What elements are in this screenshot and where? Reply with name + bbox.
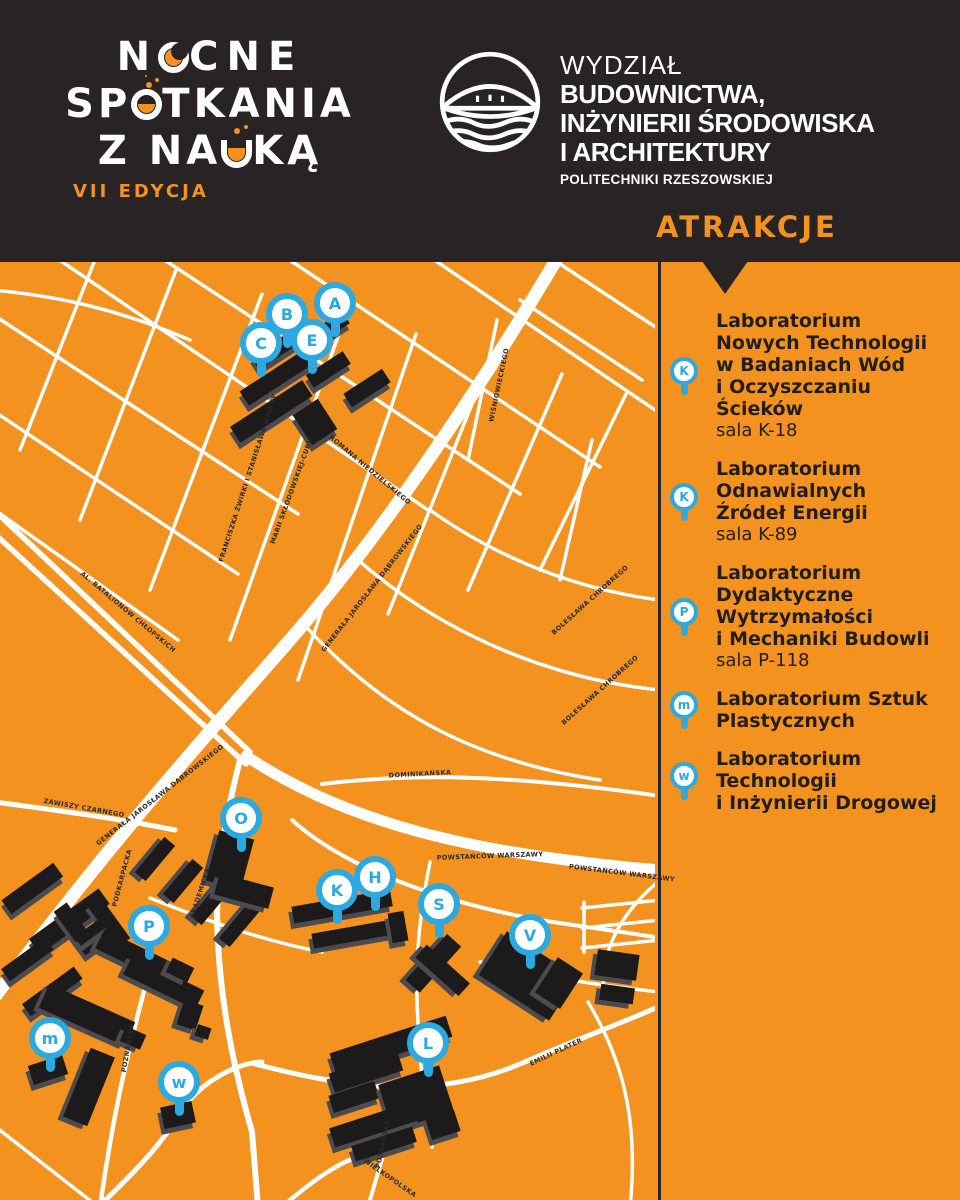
poster: A B C E O P K H S V m w <box>0 0 960 1200</box>
pointer-down-icon <box>702 261 748 294</box>
map-pin[interactable]: C <box>240 322 282 377</box>
attraction-title: Laboratorium Sztuk Plastycznych <box>716 688 956 732</box>
attraction-room: sala K-18 <box>716 420 956 442</box>
map-pin-letter: K <box>316 869 358 911</box>
attraction-pin-icon: w <box>670 762 698 800</box>
map-pin-tail <box>145 946 154 960</box>
flask-icon <box>131 89 162 120</box>
map-pin-tail <box>435 924 444 938</box>
attraction-title: Laboratorium Technologii i Inżynierii Dr… <box>716 748 956 814</box>
attraction-pin-icon: K <box>670 357 698 395</box>
map-pin[interactable]: H <box>354 856 396 911</box>
attraction-title: Laboratorium Nowych Technologii w Badani… <box>716 310 956 420</box>
event-logo: NCNE SPTKANIA Z NAKĄ VII EDYCJA <box>45 34 375 202</box>
attraction-item: P Laboratorium Dydaktyczne Wytrzymałości… <box>664 562 956 672</box>
map-pin[interactable]: P <box>128 905 170 960</box>
map-pin-tail <box>257 363 266 377</box>
map-pin[interactable]: O <box>220 797 262 852</box>
map-pin[interactable]: V <box>509 914 551 969</box>
beaker-icon <box>221 140 252 168</box>
map-pin-tail <box>526 955 535 969</box>
attraction-room: sala P-118 <box>716 650 956 672</box>
attractions-list: K Laboratorium Nowych Technologii w Bada… <box>664 262 956 830</box>
map-pin[interactable]: w <box>158 1061 200 1116</box>
logo-line-nocne: NCNE <box>45 34 375 81</box>
faculty-line-4: I ARCHITEKTURY <box>560 138 875 167</box>
faculty-line-5: POLITECHNIKI RZESZOWSKIEJ <box>560 172 875 187</box>
map-pin[interactable]: m <box>29 1017 71 1072</box>
map-pin-tail <box>175 1102 184 1116</box>
attraction-title: Laboratorium Dydaktyczne Wytrzymałości i… <box>716 562 956 650</box>
map-pin-tail <box>424 1063 433 1077</box>
faculty-name: WYDZIAŁ BUDOWNICTWA, INŻYNIERII ŚRODOWIS… <box>560 50 875 187</box>
map-pin-letter: V <box>509 914 551 956</box>
header: NCNE SPTKANIA Z NAKĄ VII EDYCJA WYDZIAŁ … <box>0 0 960 262</box>
map-pin-letter: S <box>418 883 460 925</box>
attraction-item: K Laboratorium Nowych Technologii w Bada… <box>664 310 956 442</box>
map-pin-letter: C <box>240 322 282 364</box>
map-pin-tail <box>237 838 246 852</box>
attraction-pin-icon: P <box>670 598 698 636</box>
map-pin[interactable]: L <box>407 1022 449 1077</box>
faculty-line-2: BUDOWNICTWA, <box>560 80 875 109</box>
faculty-line-1: WYDZIAŁ <box>560 50 875 80</box>
faculty-line-3: INŻYNIERII ŚRODOWISKA <box>560 109 875 138</box>
map-pin-tail <box>308 360 317 374</box>
attraction-item: w Laboratorium Technologii i Inżynierii … <box>664 748 956 814</box>
map-pin[interactable]: E <box>291 319 333 374</box>
map-pin-tail <box>371 897 380 911</box>
divider-line <box>658 262 661 1200</box>
logo-line-z-nauka: Z NAKĄ <box>45 128 375 175</box>
map-pin-letter: A <box>314 282 356 324</box>
map-roads-buildings <box>0 262 655 1200</box>
map-pin[interactable]: S <box>418 883 460 938</box>
attraction-title: Laboratorium Odnawialnych Źródeł Energii <box>716 458 956 524</box>
attraction-item: m Laboratorium Sztuk Plastycznych <box>664 688 956 732</box>
map-pin-letter: H <box>354 856 396 898</box>
attraction-pin-icon: K <box>670 483 698 521</box>
map-pin-tail <box>46 1058 55 1072</box>
map-pin-tail <box>333 910 342 924</box>
map-pin[interactable]: K <box>316 869 358 924</box>
attraction-item: K Laboratorium Odnawialnych Źródeł Energ… <box>664 458 956 546</box>
attractions-title: ATRAKCJE <box>656 210 838 244</box>
moon-icon <box>158 42 189 73</box>
edition-label: VII EDYCJA <box>45 181 375 202</box>
map-pin-letter: E <box>291 319 333 361</box>
map-buildings <box>1 312 640 1162</box>
map-pin-letter: L <box>407 1022 449 1064</box>
attraction-room: sala K-89 <box>716 524 956 546</box>
attraction-pin-icon: m <box>670 691 698 729</box>
logo-line-spotkania: SPTKANIA <box>45 81 375 128</box>
map-pin-letter: O <box>220 797 262 839</box>
map-pin-letter: m <box>29 1017 71 1059</box>
map-pin-letter: P <box>128 905 170 947</box>
map-pin-letter: w <box>158 1061 200 1103</box>
faculty-bridge-icon <box>438 50 542 154</box>
